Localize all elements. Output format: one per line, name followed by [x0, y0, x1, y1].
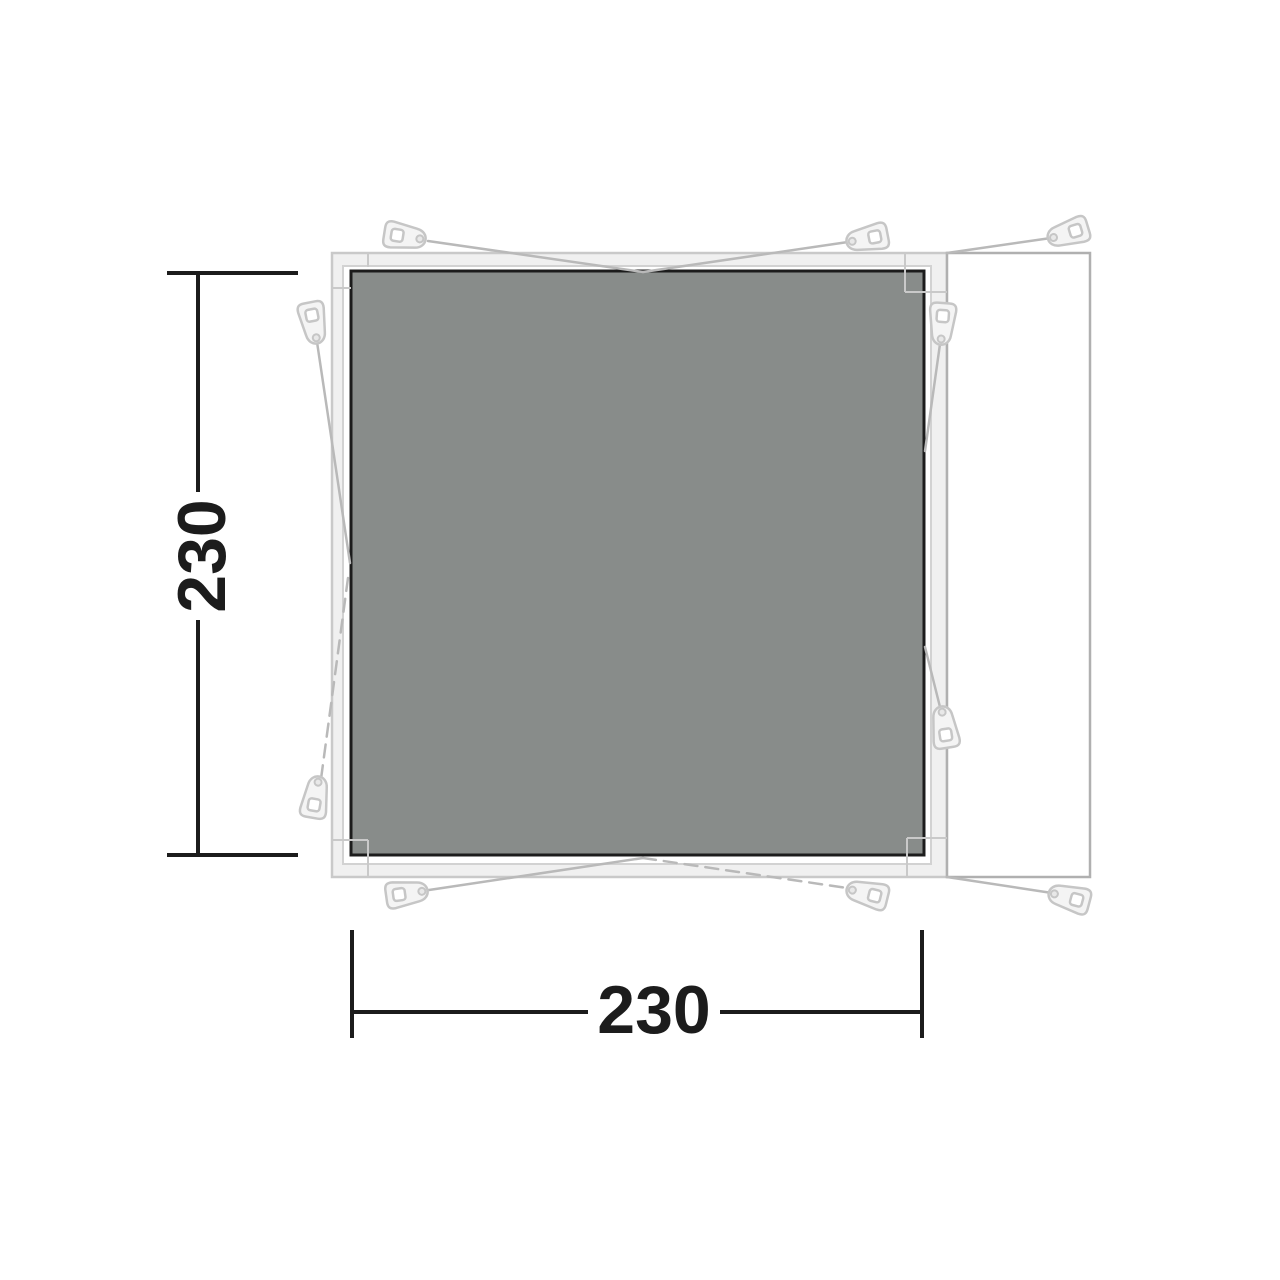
peg-hole [1068, 223, 1083, 238]
groundsheet [351, 271, 924, 855]
peg-hole [936, 310, 949, 323]
side-extension-outline [947, 253, 1090, 877]
peg-hook-dot [314, 778, 322, 786]
peg-hook-dot [418, 887, 426, 895]
guy-line [947, 877, 1052, 893]
peg-hole [1069, 892, 1084, 907]
peg-hole [392, 888, 406, 902]
peg-hole [305, 308, 319, 322]
peg-body [1044, 214, 1092, 251]
peg-icon [1045, 880, 1092, 916]
peg-icon [844, 222, 890, 256]
tent-outlines-layer [332, 253, 1090, 877]
peg-hook-dot [1049, 233, 1058, 242]
peg-hole [868, 230, 882, 244]
peg-hook-dot [416, 235, 424, 243]
peg-hook-dot [848, 886, 856, 894]
peg-icon [844, 876, 891, 911]
peg-hole [390, 228, 404, 242]
peg-icon [382, 220, 427, 252]
peg-icon [297, 300, 331, 346]
peg-icon [1044, 214, 1092, 251]
width-dimension-label: 230 [597, 972, 710, 1048]
peg-icon [384, 878, 429, 910]
tent-footprint-diagram: 230 230 [0, 0, 1280, 1280]
height-dimension-label: 230 [164, 499, 240, 612]
peg-hook-dot [848, 237, 856, 245]
peg-hole [307, 798, 321, 812]
guy-line [947, 238, 1051, 253]
peg-hook-dot [938, 708, 946, 716]
peg-icon [299, 774, 332, 820]
peg-hook-dot [312, 334, 320, 342]
peg-hook-dot [937, 335, 944, 342]
peg-hook-dot [1050, 890, 1059, 899]
peg-hole [867, 888, 882, 903]
tent-footprint-page: 230 230 [0, 0, 1280, 1280]
peg-hole [939, 728, 953, 742]
